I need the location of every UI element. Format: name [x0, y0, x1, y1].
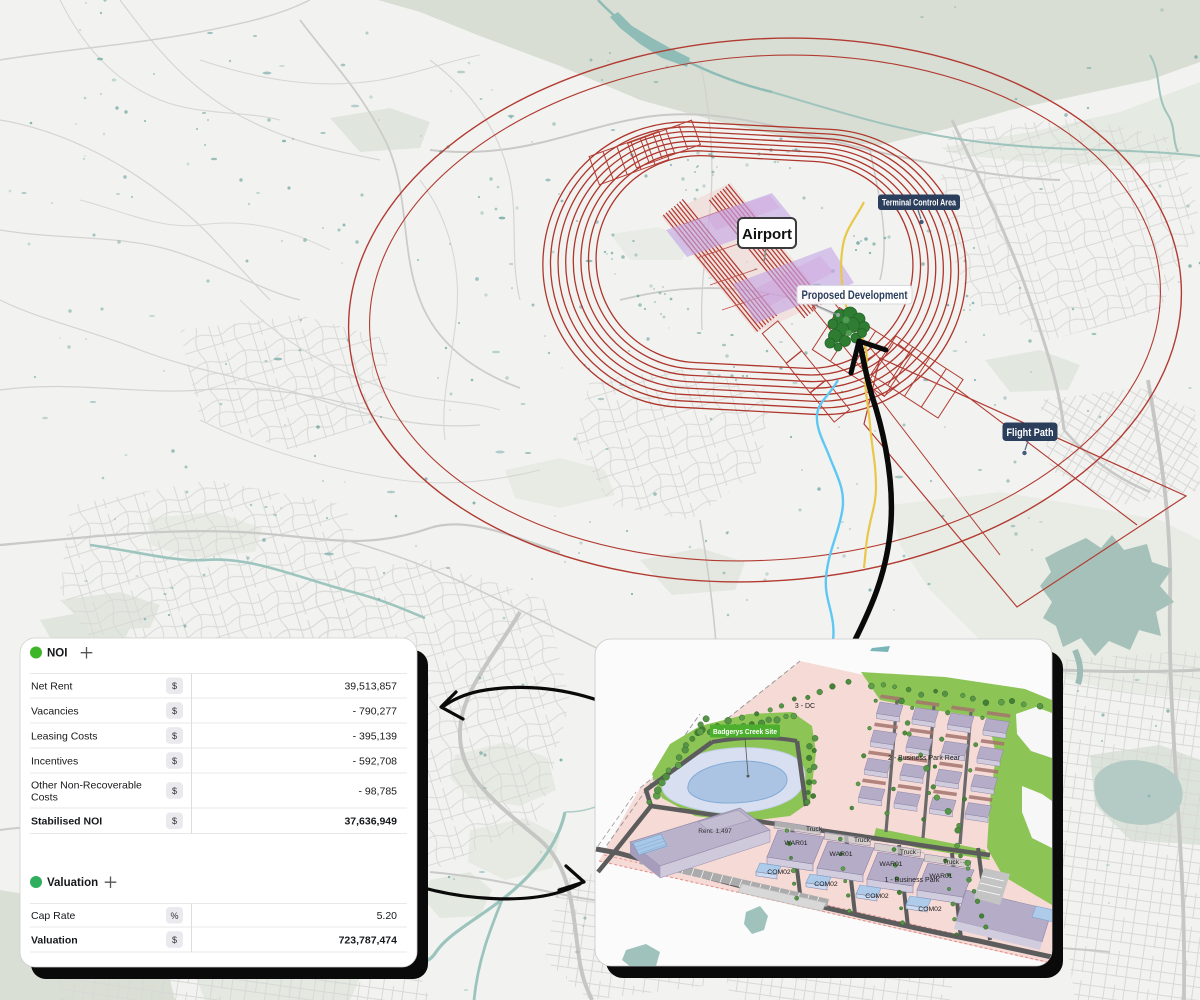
svg-text:723,787,474: 723,787,474: [339, 934, 398, 946]
svg-text:WAR01: WAR01: [784, 840, 807, 847]
svg-text:Proposed Development: Proposed Development: [802, 290, 908, 302]
svg-text:Incentives: Incentives: [31, 755, 78, 767]
svg-text:Other Non-Recoverable: Other Non-Recoverable: [31, 780, 142, 792]
svg-text:Costs: Costs: [31, 792, 58, 804]
svg-text:- 790,277: - 790,277: [353, 705, 398, 717]
svg-text:Rent: 1,497: Rent: 1,497: [698, 828, 732, 835]
svg-text:Valuation: Valuation: [47, 877, 98, 889]
svg-text:$: $: [172, 756, 177, 766]
svg-text:COM02: COM02: [865, 893, 889, 900]
svg-text:$: $: [172, 935, 177, 945]
svg-text:$: $: [172, 786, 177, 796]
svg-text:Cap Rate: Cap Rate: [31, 910, 76, 922]
svg-text:NOI: NOI: [47, 648, 67, 660]
svg-text:Truck: Truck: [806, 826, 823, 833]
svg-text:WAR01: WAR01: [929, 873, 952, 880]
svg-text:Vacancies: Vacancies: [31, 705, 79, 717]
svg-text:- 98,785: - 98,785: [358, 785, 397, 797]
svg-text:Net Rent: Net Rent: [31, 681, 73, 693]
svg-text:Leasing Costs: Leasing Costs: [31, 730, 98, 742]
svg-text:Truck: Truck: [943, 859, 960, 866]
svg-text:Terminal Control Area: Terminal Control Area: [882, 198, 957, 209]
svg-text:%: %: [170, 911, 178, 921]
svg-text:3 - DC: 3 - DC: [795, 703, 815, 710]
svg-text:Truck: Truck: [900, 849, 917, 856]
svg-text:- 592,708: - 592,708: [353, 755, 398, 767]
svg-text:Airport: Airport: [742, 226, 792, 243]
svg-text:Badgerys Creek Site: Badgerys Creek Site: [713, 727, 777, 736]
svg-text:Stabilised NOI: Stabilised NOI: [31, 816, 102, 828]
svg-text:WAR01: WAR01: [879, 861, 902, 868]
svg-text:COM02: COM02: [814, 881, 838, 888]
svg-text:$: $: [172, 706, 177, 716]
svg-text:$: $: [172, 681, 177, 691]
svg-text:$: $: [172, 731, 177, 741]
svg-text:Valuation: Valuation: [31, 934, 78, 946]
svg-text:$: $: [172, 816, 177, 826]
svg-text:2 - Business Park Rear: 2 - Business Park Rear: [888, 755, 961, 762]
svg-text:COM02: COM02: [918, 906, 942, 913]
svg-text:COM02: COM02: [767, 869, 791, 876]
svg-text:Truck: Truck: [854, 837, 871, 844]
svg-text:WAR01: WAR01: [829, 851, 852, 858]
svg-text:- 395,139: - 395,139: [353, 730, 398, 742]
svg-text:Flight Path: Flight Path: [1007, 427, 1054, 439]
svg-text:5.20: 5.20: [377, 910, 398, 922]
svg-text:37,636,949: 37,636,949: [344, 816, 397, 828]
svg-text:39,513,857: 39,513,857: [344, 681, 397, 693]
